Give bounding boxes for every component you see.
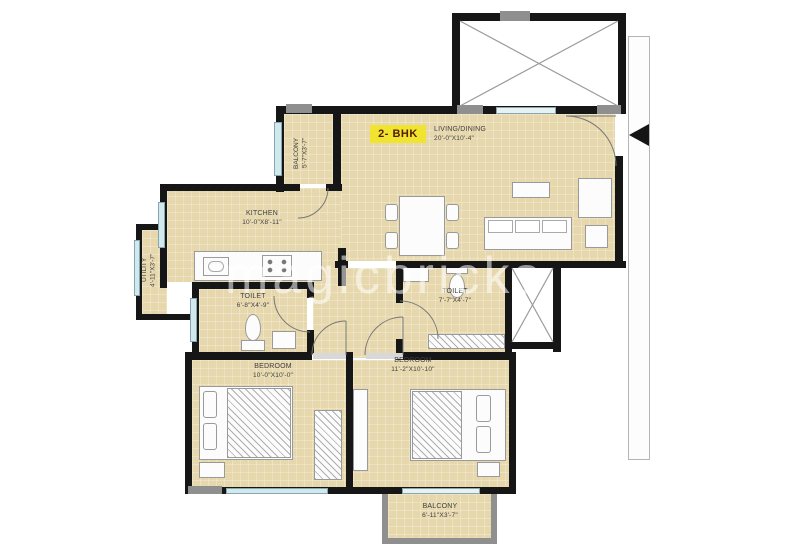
toilet-tank (241, 340, 265, 351)
coffee-table (512, 182, 550, 198)
room-name: UTILITY (141, 235, 149, 305)
room-name: BALCONY (405, 503, 475, 512)
room-label-utility: UTILITY 4'-11"X3'-7" (141, 235, 158, 305)
dining-chair (385, 204, 398, 221)
room-label-kitchen: KITCHEN 10'-0"X8'-11" (222, 210, 302, 227)
window (226, 488, 328, 494)
window (158, 202, 165, 248)
pillow (476, 395, 491, 422)
wall-vent (286, 104, 312, 113)
toilet-wc (245, 314, 261, 341)
wall (185, 352, 312, 360)
wash-basin (272, 331, 296, 349)
armchair (578, 178, 612, 218)
mattress (412, 391, 462, 459)
door-threshold (313, 353, 346, 359)
room-label-bedroom-right: BEDROOM 11'-2"X10'-10" (372, 357, 454, 374)
bedside-table (199, 462, 225, 478)
pillow (203, 423, 217, 450)
room-dims: 5'-7"X3'-7" (301, 122, 309, 184)
balcony-sliding-door (402, 488, 480, 494)
room-dims: 4'-11"X3'-7" (149, 235, 157, 305)
floor-plan: 2- BHK LIVING/DINING 20'-0"X10'-4" KITCH… (0, 0, 800, 560)
pillow (476, 426, 491, 453)
wall-vent (500, 11, 530, 21)
sofa-cushion (488, 220, 513, 233)
wall (160, 184, 300, 191)
wall (509, 352, 516, 494)
wall-vent (188, 486, 222, 494)
room-dims: 10'-0"X8'-11" (222, 219, 302, 227)
wall-vent (597, 105, 621, 114)
room-dims: 10'-0"X10'-0" (232, 372, 314, 380)
sink-basin (208, 261, 224, 272)
wall (618, 13, 626, 114)
room-name: BEDROOM (372, 357, 454, 366)
room-name: LIVING/DINING (434, 126, 524, 135)
mattress (227, 388, 291, 458)
balcony-wall (491, 494, 497, 544)
wardrobe (314, 410, 342, 480)
balcony-wall (382, 494, 388, 544)
room-label-balcony-top: BALCONY 5'-7"X3'-7" (293, 122, 310, 184)
room-name: BALCONY (293, 122, 301, 184)
outer-corridor (628, 36, 650, 460)
side-table (585, 225, 608, 248)
entrance-arrow-icon (629, 124, 649, 146)
pillow (203, 391, 217, 418)
room-dims: 11'-2"X10'-10" (372, 366, 454, 374)
window (134, 240, 140, 296)
wall (326, 184, 342, 191)
balcony-wall (382, 538, 497, 544)
bhk-badge: 2- BHK (370, 125, 426, 143)
room-name: BEDROOM (232, 363, 314, 372)
room-label-bedroom-left: BEDROOM 10'-0"X10'-0" (232, 363, 314, 380)
wardrobe (353, 389, 368, 471)
wall (333, 110, 341, 190)
duct-shaft-top (460, 21, 618, 106)
window (274, 122, 282, 176)
window (190, 298, 197, 342)
wall (307, 330, 314, 354)
room-label-balcony-bottom: BALCONY 6'-11"X3'-7" (405, 503, 475, 520)
sofa-cushion (542, 220, 567, 233)
wall (553, 261, 561, 352)
window (496, 107, 556, 114)
wall (452, 13, 626, 21)
wall (615, 156, 623, 268)
room-dims: 6'-11"X3'-7" (405, 512, 475, 520)
wall (346, 352, 353, 494)
watermark: magicbricks (225, 246, 544, 306)
room-dims: 20'-0"X10'-4" (434, 135, 524, 143)
room-name: KITCHEN (222, 210, 302, 219)
wall (185, 352, 192, 494)
bedside-table (477, 462, 500, 477)
wall (136, 314, 198, 320)
wall (505, 342, 561, 349)
wall-vent (457, 105, 483, 114)
room-label-living: LIVING/DINING 20'-0"X10'-4" (434, 126, 524, 143)
sofa-cushion (515, 220, 540, 233)
dining-chair (446, 204, 459, 221)
shower-ledge (428, 334, 505, 349)
wall (452, 13, 460, 114)
